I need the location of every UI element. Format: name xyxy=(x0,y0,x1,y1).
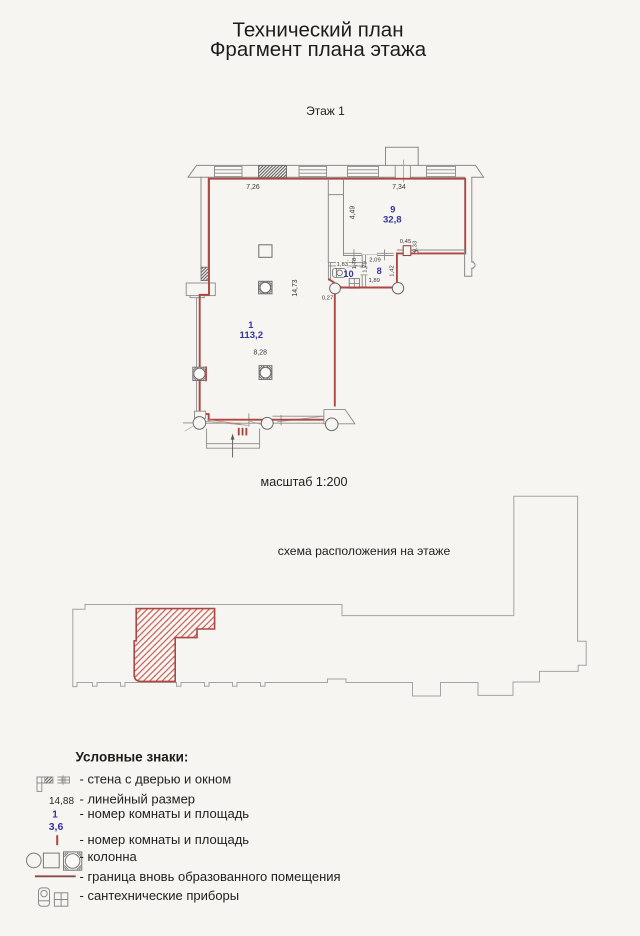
svg-text:Этаж 1: Этаж 1 xyxy=(306,104,345,118)
svg-text:3,6: 3,6 xyxy=(49,821,64,833)
svg-text:4,49: 4,49 xyxy=(350,206,357,220)
svg-text:32,8: 32,8 xyxy=(383,215,402,226)
svg-text:0,27: 0,27 xyxy=(322,295,333,301)
svg-text:113,2: 113,2 xyxy=(240,330,263,341)
svg-text:- колонна: - колонна xyxy=(80,849,138,864)
svg-text:- линейный размер: - линейный размер xyxy=(80,792,196,807)
svg-text:масштаб 1:200: масштаб 1:200 xyxy=(261,475,348,489)
svg-text:Фрагмент плана этажа: Фрагмент плана этажа xyxy=(210,38,427,61)
svg-text:9: 9 xyxy=(390,204,395,214)
svg-text:- номер комнаты и площадь: - номер комнаты и площадь xyxy=(80,806,250,821)
svg-text:8: 8 xyxy=(377,266,382,276)
svg-text:- сантехнические приборы: - сантехнические приборы xyxy=(80,888,240,903)
svg-text:- номер комнаты и площадь: - номер комнаты и площадь xyxy=(80,832,250,847)
svg-text:14,73: 14,73 xyxy=(292,279,299,296)
svg-text:0,33: 0,33 xyxy=(413,240,419,252)
svg-text:1,83: 1,83 xyxy=(337,262,349,268)
svg-text:2,09: 2,09 xyxy=(369,257,380,263)
svg-text:1: 1 xyxy=(248,320,253,330)
svg-text:1,79: 1,79 xyxy=(362,261,368,272)
svg-text:7,26: 7,26 xyxy=(246,184,260,191)
svg-text:1,89: 1,89 xyxy=(368,278,379,284)
svg-text:Условные знаки:: Условные знаки: xyxy=(76,750,189,765)
svg-text:10: 10 xyxy=(343,269,353,279)
svg-text:1,78: 1,78 xyxy=(352,257,358,269)
svg-text:- граница вновь образованного: - граница вновь образованного помещения xyxy=(80,869,341,884)
svg-text:7,34: 7,34 xyxy=(392,184,406,191)
svg-text:- стена с дверью и окном: - стена с дверью и окном xyxy=(80,772,232,787)
svg-text:1,42: 1,42 xyxy=(390,265,396,276)
svg-text:14,88: 14,88 xyxy=(49,796,74,807)
svg-text:схема расположения на этаже: схема расположения на этаже xyxy=(278,544,451,558)
svg-text:0,45: 0,45 xyxy=(400,239,412,245)
svg-text:1: 1 xyxy=(52,810,58,821)
svg-text:8,28: 8,28 xyxy=(253,350,267,357)
